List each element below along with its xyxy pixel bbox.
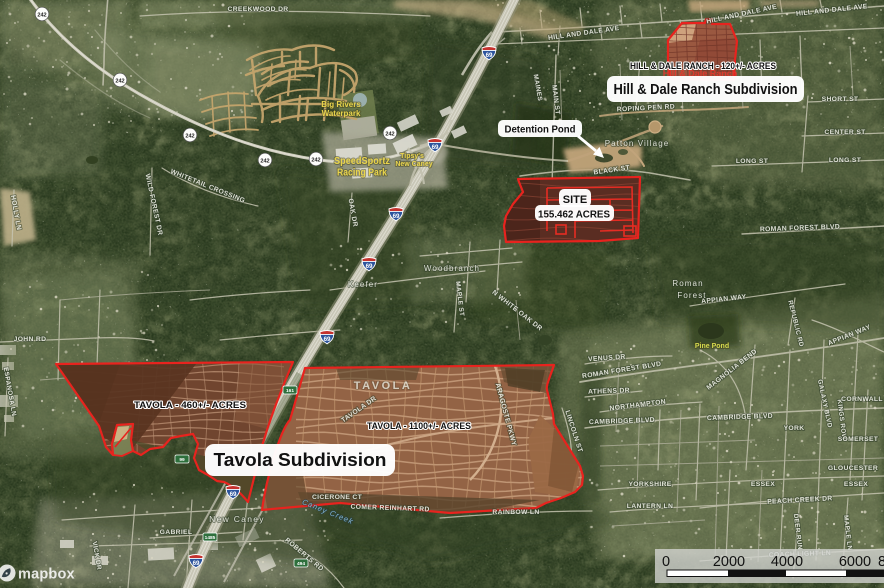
svg-text:Patton Village: Patton Village [605, 139, 670, 148]
svg-text:69: 69 [432, 144, 439, 151]
svg-text:SOMERSET: SOMERSET [838, 436, 879, 443]
svg-text:ATHENS DR: ATHENS DR [588, 387, 630, 395]
svg-text:Forest: Forest [677, 291, 706, 300]
svg-text:TAVOLA - 460+/- ACRES: TAVOLA - 460+/- ACRES [134, 400, 246, 410]
svg-text:Pine Pond: Pine Pond [695, 343, 729, 350]
svg-text:69: 69 [486, 52, 493, 59]
svg-text:TAVOLA - 1100+/- ACRES: TAVOLA - 1100+/- ACRES [367, 421, 471, 431]
svg-text:LANTERN LN: LANTERN LN [627, 503, 673, 510]
svg-text:RAINBOW LN: RAINBOW LN [492, 509, 539, 516]
svg-text:242: 242 [311, 157, 320, 163]
svg-text:CREEKWOOD DR: CREEKWOOD DR [228, 6, 289, 13]
svg-text:ESSEX: ESSEX [751, 481, 775, 488]
svg-text:161: 161 [286, 388, 294, 394]
svg-text:Tavola Subdivision: Tavola Subdivision [214, 449, 387, 470]
svg-text:GABRIEL: GABRIEL [160, 529, 193, 536]
svg-text:242: 242 [115, 78, 124, 84]
svg-text:Tipsy's: Tipsy's [400, 153, 424, 160]
svg-text:YORK: YORK [784, 425, 805, 432]
svg-text:JOHN RD: JOHN RD [14, 336, 47, 343]
svg-text:4000: 4000 [771, 554, 803, 570]
svg-text:69: 69 [230, 491, 237, 498]
svg-text:69: 69 [366, 263, 373, 270]
svg-text:Waterpark: Waterpark [322, 109, 361, 118]
svg-text:Roman: Roman [672, 279, 703, 288]
svg-text:155.462 ACRES: 155.462 ACRES [538, 209, 610, 221]
svg-text:mapbox: mapbox [18, 567, 75, 583]
svg-text:New Caney: New Caney [395, 161, 432, 168]
svg-text:CORNWALL: CORNWALL [841, 396, 883, 403]
svg-text:TAVOLA: TAVOLA [354, 380, 413, 392]
svg-text:242: 242 [385, 131, 394, 137]
svg-text:SHORT ST: SHORT ST [822, 96, 859, 103]
svg-text:Keefer: Keefer [348, 280, 378, 289]
svg-text:Hill & Dale Ranch Subdivision: Hill & Dale Ranch Subdivision [614, 81, 798, 98]
svg-text:Detention Pond: Detention Pond [505, 124, 576, 136]
svg-text:69: 69 [193, 560, 200, 567]
svg-text:8: 8 [878, 554, 884, 570]
svg-text:HILL & DALE RANCH - 120+/- ACR: HILL & DALE RANCH - 120+/- ACRES [630, 61, 776, 71]
svg-text:2000: 2000 [713, 554, 745, 570]
svg-text:494: 494 [297, 561, 305, 567]
svg-text:69: 69 [393, 213, 400, 220]
svg-text:1485: 1485 [205, 535, 216, 541]
svg-text:SpeedSportz: SpeedSportz [334, 156, 390, 167]
svg-text:CICERONE CT: CICERONE CT [312, 494, 363, 501]
svg-text:0: 0 [662, 554, 670, 570]
svg-text:99: 99 [179, 457, 185, 463]
svg-text:Woodbranch: Woodbranch [424, 264, 480, 273]
svg-text:69: 69 [324, 336, 331, 343]
svg-text:LONG ST: LONG ST [736, 158, 769, 165]
svg-text:ESSEX: ESSEX [844, 481, 868, 488]
svg-text:LONG ST: LONG ST [829, 157, 862, 164]
svg-text:242: 242 [37, 12, 46, 18]
svg-text:YORKSHIRE: YORKSHIRE [628, 481, 671, 488]
svg-text:Racing Park: Racing Park [337, 168, 387, 179]
svg-text:SITE: SITE [563, 194, 587, 206]
svg-text:CENTER ST: CENTER ST [824, 129, 866, 136]
svg-text:Big Rivers: Big Rivers [321, 100, 361, 109]
svg-text:6000: 6000 [839, 554, 871, 570]
svg-text:242: 242 [260, 158, 269, 164]
svg-text:242: 242 [185, 133, 194, 139]
svg-text:New Caney: New Caney [209, 514, 265, 524]
svg-text:GLOUCESTER: GLOUCESTER [828, 465, 878, 472]
